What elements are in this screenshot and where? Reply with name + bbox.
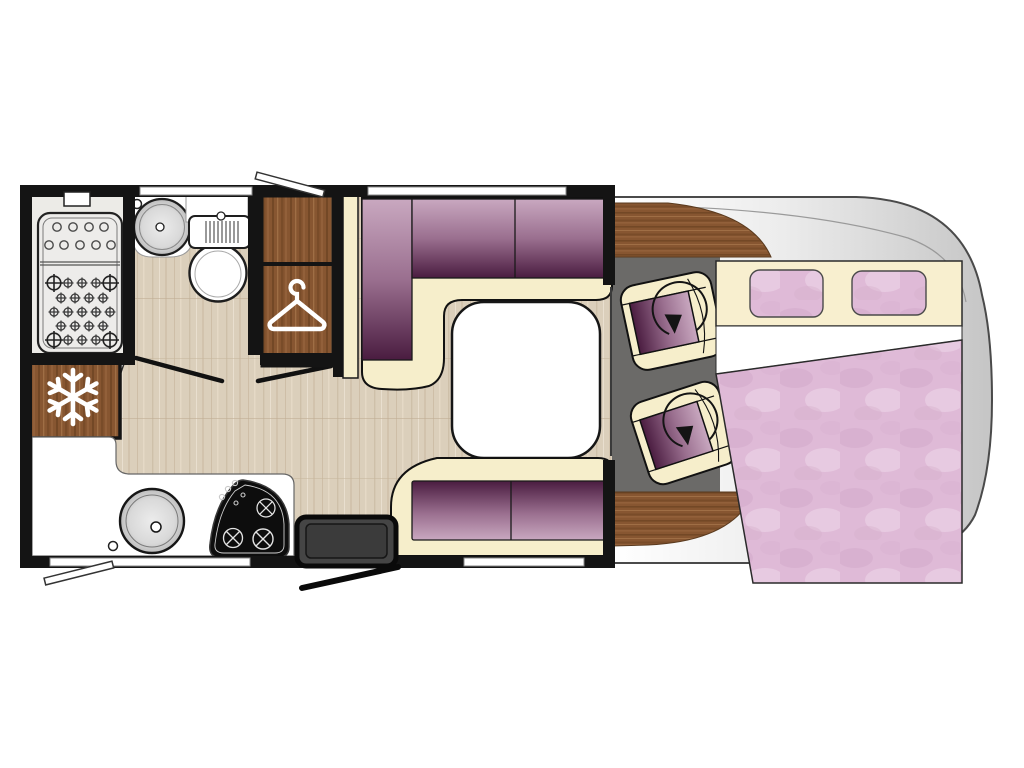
entry-step-inner bbox=[306, 524, 387, 558]
window-kitchen bbox=[50, 558, 250, 566]
toilet-flush-button bbox=[217, 212, 225, 220]
dinette-cushion-back bbox=[412, 199, 604, 278]
washbasin-drain bbox=[156, 223, 164, 231]
wall-stub-bottom-right bbox=[603, 460, 615, 568]
toilet-bowl bbox=[190, 245, 247, 302]
window-bench bbox=[464, 558, 584, 566]
wall-bathroom-wardrobe bbox=[248, 190, 262, 355]
wall-stub-top-right bbox=[603, 185, 615, 285]
shower-head-notch bbox=[64, 192, 90, 206]
kitchen-tap bbox=[109, 542, 118, 551]
side-bench-cushion bbox=[412, 481, 608, 540]
entry-door-swing bbox=[302, 567, 398, 588]
dinette-cushion-left bbox=[362, 199, 412, 360]
wall-under-wardrobe bbox=[260, 353, 333, 365]
bed-duvet bbox=[716, 340, 962, 583]
floor-plan bbox=[0, 0, 1024, 768]
double-bed bbox=[716, 261, 962, 583]
kitchen-sink-drain bbox=[151, 522, 161, 532]
washbasin bbox=[133, 196, 194, 257]
entry bbox=[297, 517, 398, 588]
window-bathroom bbox=[140, 187, 252, 195]
pillow-left bbox=[750, 270, 823, 317]
shower-tray bbox=[38, 213, 122, 353]
wall-right-of-wardrobe bbox=[333, 185, 343, 377]
wardrobe bbox=[262, 196, 333, 366]
refrigerator bbox=[26, 357, 120, 438]
window-dinette bbox=[368, 187, 566, 195]
pillow-right bbox=[852, 271, 926, 315]
toilet bbox=[186, 196, 250, 302]
wall-under-shower bbox=[20, 353, 135, 365]
wall-shower-divider bbox=[123, 190, 135, 355]
floor-plan-page bbox=[0, 0, 1024, 768]
wall-left bbox=[20, 185, 32, 568]
kitchen-sink bbox=[120, 489, 184, 553]
toilet-cistern bbox=[189, 216, 250, 248]
dinette-backrest-strip bbox=[343, 196, 358, 378]
dinette-table bbox=[452, 302, 600, 458]
